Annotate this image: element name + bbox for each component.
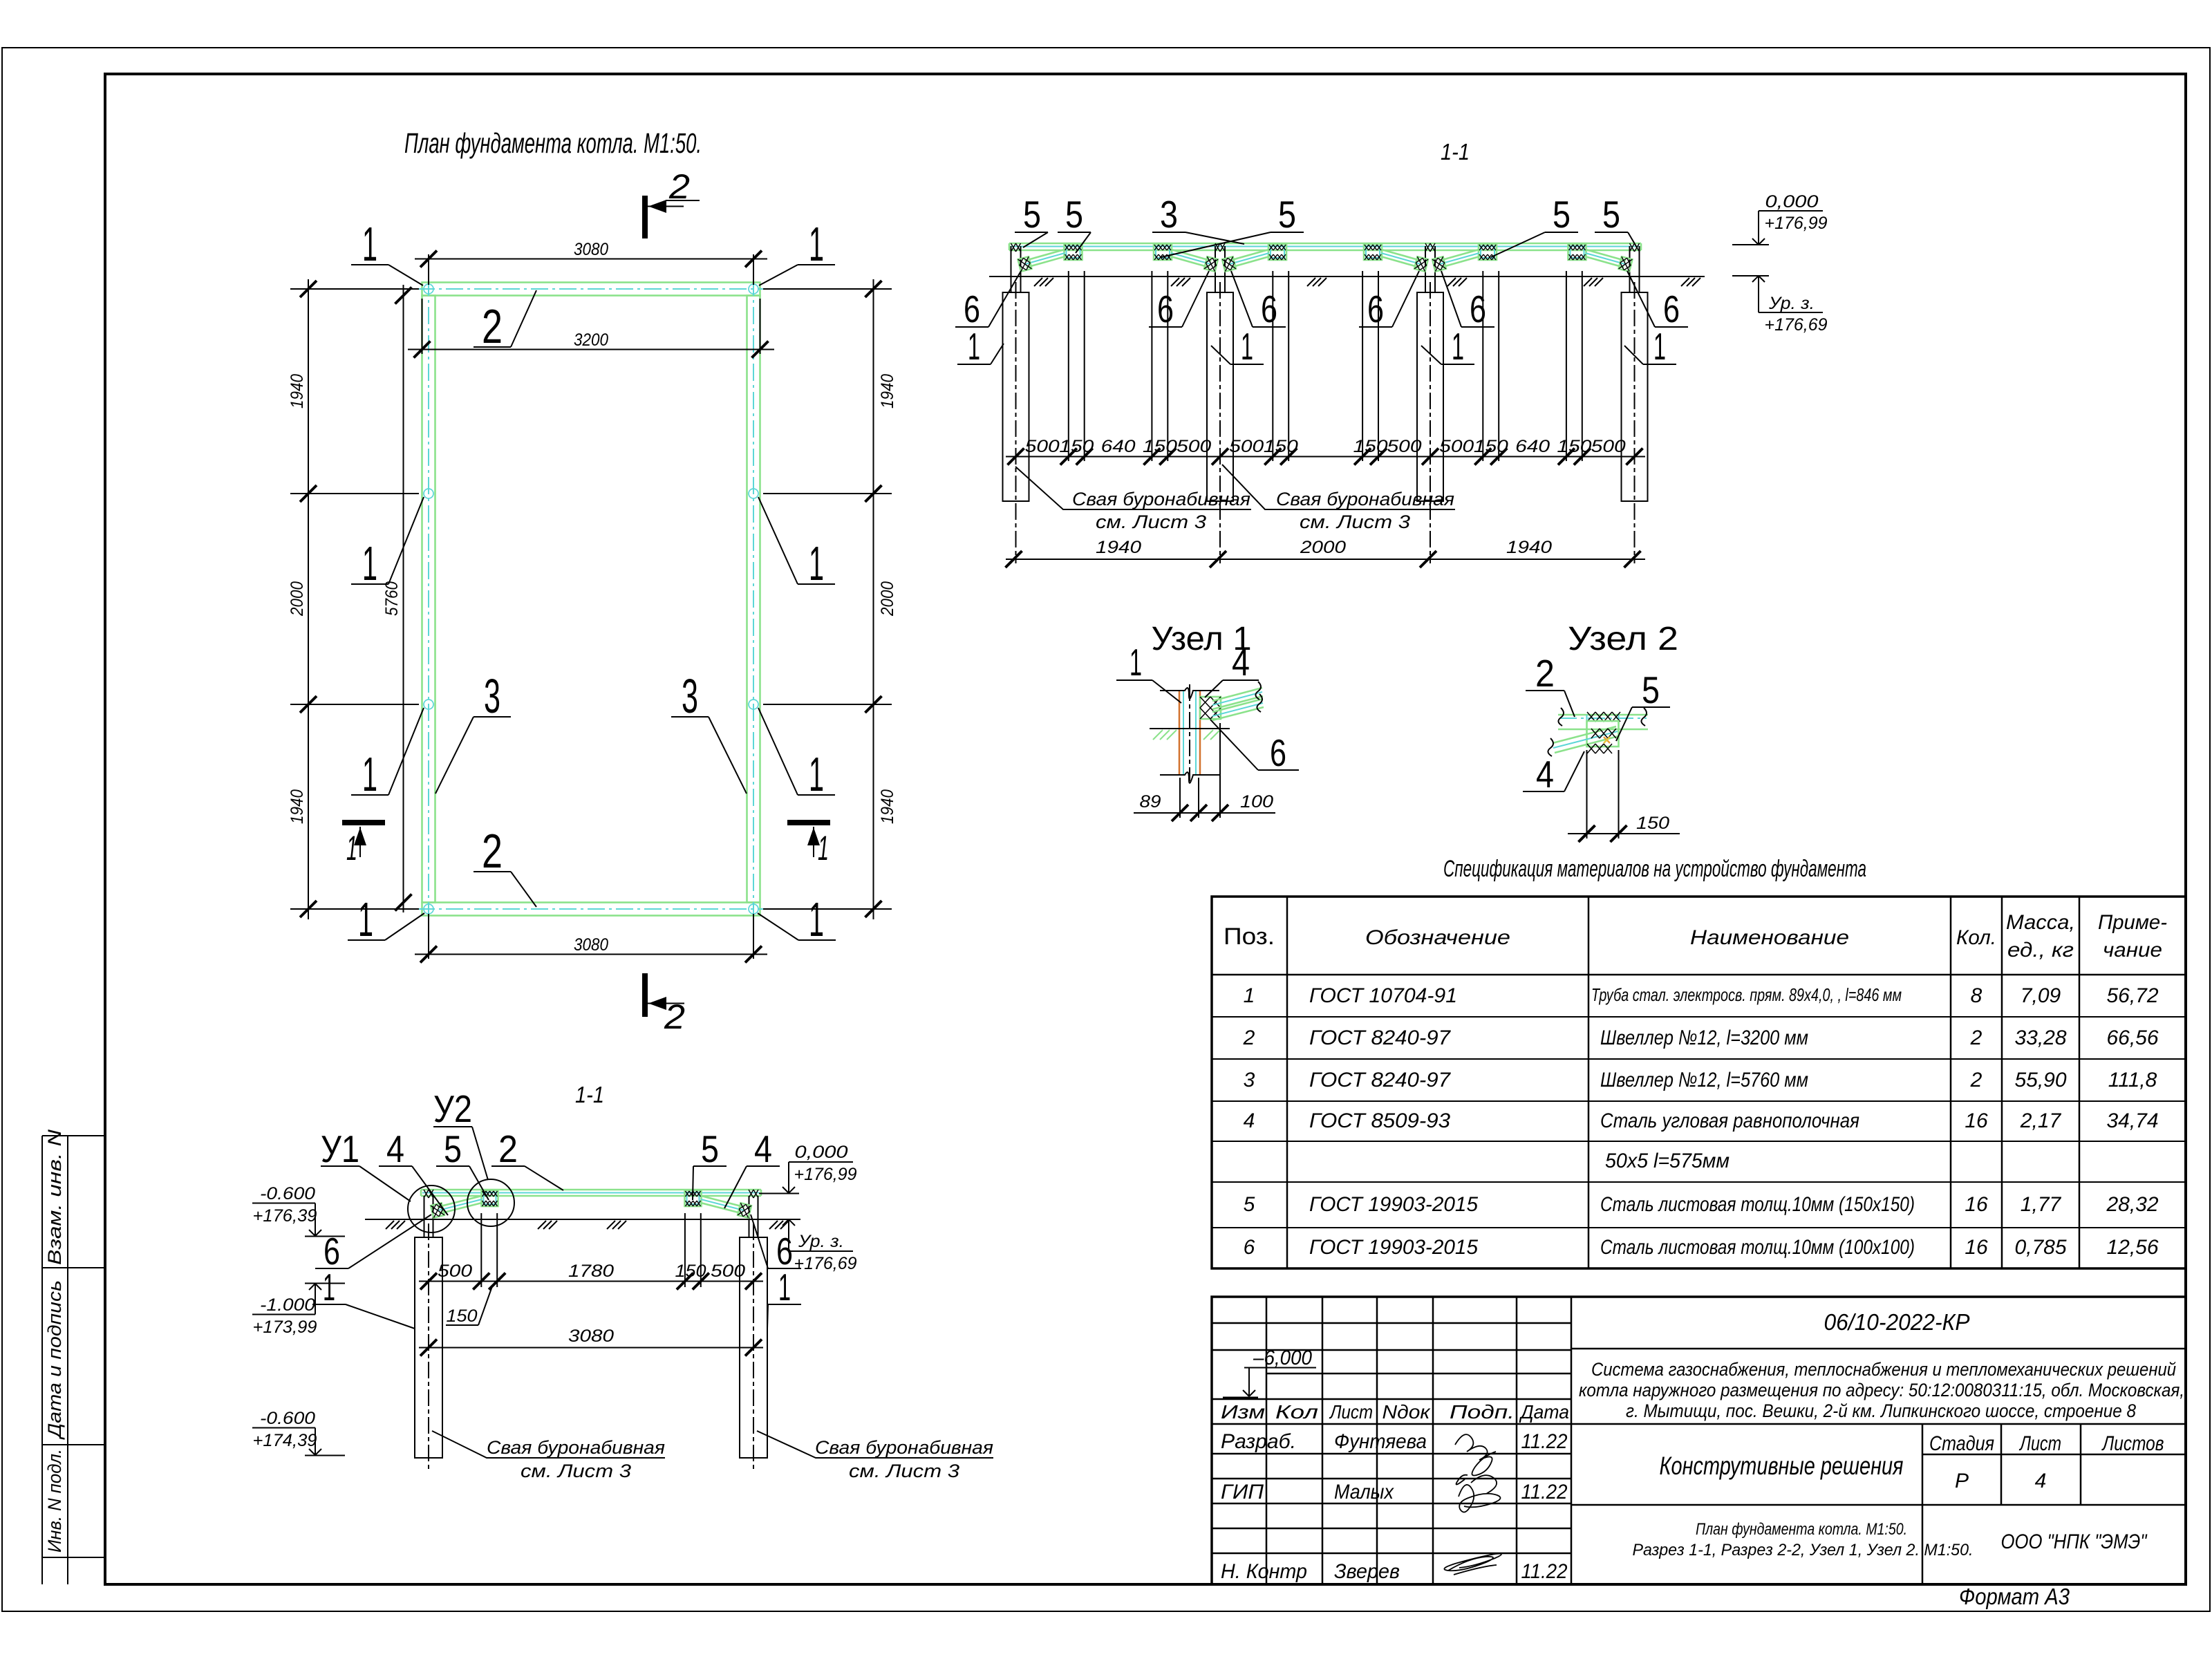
svg-text:2000: 2000 [878, 581, 897, 617]
svg-text:1: 1 [323, 1266, 335, 1309]
svg-text:5: 5 [701, 1127, 719, 1170]
svg-text:Малых: Малых [1334, 1481, 1394, 1503]
svg-text:Сталь листовая толщ.10мм (100х: Сталь листовая толщ.10мм (100х100) [1600, 1236, 1915, 1259]
svg-text:Н. Контр: Н. Контр [1221, 1560, 1307, 1583]
svg-text:500: 500 [1439, 437, 1474, 456]
svg-text:6: 6 [964, 288, 980, 330]
svg-text:Труба стал. электросв. прям. 8: Труба стал. электросв. прям. 89х4,0, , l… [1591, 984, 1902, 1005]
svg-text:640: 640 [1101, 437, 1136, 456]
svg-text:111,8: 111,8 [2108, 1069, 2157, 1091]
svg-text:Стадия: Стадия [1929, 1432, 1994, 1455]
svg-text:500: 500 [1591, 437, 1626, 456]
svg-text:Разрез 1-1, Разрез 2-2, Узел 1: Разрез 1-1, Разрез 2-2, Узел 1, Узел 2. … [1633, 1541, 1974, 1559]
svg-text:Nдок: Nдок [1382, 1401, 1432, 1423]
svg-text:Взам. инв. N: Взам. инв. N [44, 1129, 65, 1265]
svg-text:89: 89 [1140, 792, 1161, 812]
svg-text:ГОСТ 19903-2015: ГОСТ 19903-2015 [1309, 1236, 1478, 1259]
svg-text:-0.600: -0.600 [260, 1409, 315, 1428]
svg-text:1-1: 1-1 [575, 1082, 604, 1107]
svg-text:1: 1 [1452, 325, 1464, 368]
svg-text:Швеллер №12, l=3200 мм: Швеллер №12, l=3200 мм [1600, 1027, 1808, 1049]
svg-text:Изм: Изм [1221, 1401, 1265, 1423]
svg-text:План фундамента котла. М1:50.: План фундамента котла. М1:50. [1696, 1520, 1907, 1539]
svg-text:16: 16 [1965, 1109, 1988, 1132]
svg-text:6: 6 [1663, 288, 1680, 330]
svg-text:1940: 1940 [288, 789, 307, 824]
svg-text:Лист: Лист [1329, 1401, 1373, 1423]
svg-text:Масса,: Масса, [2006, 911, 2075, 934]
svg-text:150: 150 [675, 1262, 706, 1281]
svg-text:1: 1 [1244, 984, 1255, 1007]
svg-text:2: 2 [1535, 652, 1555, 695]
svg-text:ГОСТ 8240-97: ГОСТ 8240-97 [1309, 1069, 1451, 1091]
svg-text:3080: 3080 [568, 1327, 614, 1346]
svg-text:Система газоснабжения, теплосн: Система газоснабжения, теплоснабжения и … [1591, 1359, 2176, 1380]
svg-text:1: 1 [362, 536, 377, 590]
svg-text:3080: 3080 [574, 935, 608, 955]
svg-text:1: 1 [1653, 325, 1666, 368]
svg-text:56,72: 56,72 [2106, 984, 2158, 1007]
svg-text:Узел 2: Узел 2 [1568, 621, 1678, 657]
svg-text:Кол.: Кол. [1956, 926, 1996, 949]
svg-text:150: 150 [1353, 437, 1388, 456]
svg-text:котла наружного размещения по: котла наружного размещения по адресу: 50… [1579, 1380, 2184, 1400]
svg-text:6: 6 [1157, 288, 1174, 330]
svg-text:5: 5 [1023, 193, 1041, 236]
svg-text:5: 5 [1244, 1193, 1255, 1216]
svg-text:4: 4 [1536, 753, 1554, 796]
svg-text:1: 1 [1241, 325, 1253, 368]
svg-text:1: 1 [818, 829, 829, 868]
svg-text:–6,000: –6,000 [1253, 1347, 1312, 1369]
svg-text:6: 6 [1244, 1236, 1255, 1259]
svg-text:2: 2 [1243, 1027, 1255, 1049]
svg-text:0,000: 0,000 [795, 1143, 848, 1162]
svg-text:500: 500 [711, 1262, 745, 1281]
svg-text:4: 4 [2035, 1470, 2047, 1492]
svg-text:Кол: Кол [1275, 1401, 1318, 1423]
svg-text:7,09: 7,09 [2021, 984, 2061, 1007]
svg-text:3080: 3080 [574, 240, 608, 259]
svg-text:55,90: 55,90 [2014, 1069, 2066, 1091]
svg-text:Подп.: Подп. [1450, 1401, 1515, 1423]
svg-text:+176,99: +176,99 [794, 1165, 857, 1184]
svg-text:1940: 1940 [878, 374, 897, 409]
svg-text:4: 4 [1244, 1109, 1255, 1132]
svg-text:1780: 1780 [568, 1262, 614, 1281]
svg-text:Формат А3: Формат А3 [1959, 1584, 2070, 1609]
svg-text:06/10-2022-КР: 06/10-2022-КР [1824, 1309, 1970, 1335]
svg-text:Инв. N подл.: Инв. N подл. [44, 1449, 65, 1553]
svg-text:ГОСТ 8509-93: ГОСТ 8509-93 [1309, 1109, 1450, 1132]
svg-text:11.22: 11.22 [1521, 1481, 1568, 1503]
svg-text:5: 5 [1278, 193, 1296, 236]
svg-text:640: 640 [1515, 437, 1550, 456]
svg-text:1: 1 [362, 217, 377, 271]
svg-text:У2: У2 [433, 1087, 472, 1130]
svg-text:3: 3 [1160, 193, 1178, 236]
svg-text:150: 150 [1143, 437, 1177, 456]
svg-text:2: 2 [1970, 1027, 1983, 1049]
svg-text:4: 4 [386, 1127, 404, 1170]
svg-text:500: 500 [1177, 437, 1211, 456]
svg-text:Лист: Лист [2018, 1432, 2061, 1455]
svg-text:+173,99: +173,99 [253, 1318, 317, 1337]
svg-text:ГОСТ 19903-2015: ГОСТ 19903-2015 [1309, 1193, 1478, 1216]
svg-text:Приме-: Приме- [2098, 911, 2167, 934]
svg-text:150: 150 [1059, 437, 1094, 456]
svg-text:Свая буронабивная: Свая буронабивная [487, 1437, 665, 1458]
svg-text:Свая буронабивная: Свая буронабивная [1276, 489, 1454, 509]
svg-text:1: 1 [358, 892, 373, 946]
svg-text:3200: 3200 [574, 330, 608, 350]
svg-text:чание: чание [2103, 939, 2162, 962]
svg-text:150: 150 [1264, 437, 1298, 456]
svg-text:-1.000: -1.000 [260, 1295, 315, 1315]
svg-text:16: 16 [1965, 1236, 1988, 1259]
svg-text:Ур. з.: Ур. з. [798, 1232, 844, 1251]
svg-text:150: 150 [1474, 437, 1508, 456]
svg-text:6: 6 [1270, 731, 1286, 774]
svg-text:2,17: 2,17 [2020, 1109, 2062, 1132]
svg-text:Спецификация материалов на уст: Спецификация материалов на устройство фу… [1443, 856, 1866, 882]
svg-text:ГОСТ 8240-97: ГОСТ 8240-97 [1309, 1027, 1451, 1049]
svg-text:6: 6 [1470, 288, 1486, 330]
svg-text:2: 2 [482, 824, 503, 878]
svg-text:Сталь листовая толщ.10мм (150х: Сталь листовая толщ.10мм (150х150) [1600, 1193, 1915, 1216]
svg-text:ГОСТ 10704-91: ГОСТ 10704-91 [1309, 984, 1457, 1007]
svg-text:Конструтивные решения: Конструтивные решения [1660, 1452, 1904, 1480]
svg-text:11.22: 11.22 [1521, 1430, 1568, 1453]
svg-text:+176,69: +176,69 [1765, 315, 1828, 335]
svg-text:2: 2 [482, 299, 503, 353]
svg-text:5: 5 [1065, 193, 1083, 236]
svg-text:Обозначение: Обозначение [1365, 926, 1510, 949]
svg-text:6: 6 [1367, 288, 1384, 330]
svg-text:4: 4 [1232, 641, 1250, 684]
svg-text:1: 1 [968, 325, 980, 368]
svg-text:50х5 l=575мм: 50х5 l=575мм [1605, 1150, 1730, 1172]
svg-text:1940: 1940 [878, 789, 897, 824]
svg-text:-0.600: -0.600 [260, 1184, 315, 1203]
svg-text:1: 1 [346, 829, 357, 868]
svg-text:3: 3 [484, 669, 500, 723]
svg-text:0,000: 0,000 [1765, 192, 1819, 212]
svg-text:2: 2 [664, 997, 685, 1036]
svg-text:500: 500 [1229, 437, 1264, 456]
svg-text:150: 150 [447, 1306, 478, 1326]
svg-text:+176,69: +176,69 [794, 1254, 857, 1273]
svg-text:1,77: 1,77 [2021, 1193, 2062, 1216]
svg-text:500: 500 [1025, 437, 1060, 456]
svg-text:ГИП: ГИП [1221, 1481, 1264, 1503]
svg-text:1: 1 [778, 1266, 791, 1309]
svg-text:Ур. з.: Ур. з. [1768, 294, 1815, 313]
svg-text:5: 5 [1642, 668, 1660, 711]
svg-text:1940: 1940 [288, 374, 307, 409]
svg-text:Дата и подпись: Дата и подпись [44, 1280, 65, 1440]
svg-text:0,785: 0,785 [2014, 1236, 2066, 1259]
svg-text:28,32: 28,32 [2106, 1193, 2158, 1216]
svg-text:План фундамента котла. М1:50.: План фундамента котла. М1:50. [404, 127, 702, 159]
svg-text:1: 1 [362, 747, 377, 801]
svg-text:У1: У1 [321, 1127, 359, 1170]
svg-text:Сталь угловая равнополочная: Сталь угловая равнополочная [1600, 1109, 1859, 1132]
svg-text:Разраб.: Разраб. [1221, 1430, 1296, 1453]
svg-text:11.22: 11.22 [1521, 1560, 1568, 1583]
svg-text:500: 500 [438, 1262, 472, 1281]
svg-text:1940: 1940 [1506, 538, 1552, 557]
svg-text:16: 16 [1965, 1193, 1988, 1216]
svg-text:Фунтяева: Фунтяева [1334, 1430, 1427, 1453]
svg-text:5: 5 [1553, 193, 1571, 236]
svg-text:1-1: 1-1 [1441, 139, 1470, 165]
svg-text:1: 1 [809, 536, 824, 590]
svg-text:1: 1 [809, 892, 824, 946]
svg-text:12,56: 12,56 [2106, 1236, 2158, 1259]
svg-text:3: 3 [682, 669, 698, 723]
svg-text:2000: 2000 [1300, 538, 1346, 557]
svg-text:2: 2 [1970, 1069, 1983, 1091]
svg-text:Швеллер №12, l=5760 мм: Швеллер №12, l=5760 мм [1600, 1069, 1808, 1091]
svg-text:2000: 2000 [288, 581, 307, 617]
svg-text:3: 3 [1244, 1069, 1255, 1091]
svg-text:8: 8 [1971, 984, 1983, 1007]
svg-text:Р: Р [1955, 1470, 1969, 1492]
svg-text:Дата: Дата [1519, 1401, 1569, 1423]
svg-text:1940: 1940 [1096, 538, 1141, 557]
svg-text:+176,99: +176,99 [1765, 214, 1828, 233]
svg-text:1: 1 [809, 747, 824, 801]
svg-text:2: 2 [498, 1127, 518, 1170]
svg-text:1: 1 [809, 217, 824, 271]
svg-text:6: 6 [1261, 288, 1277, 330]
svg-text:66,56: 66,56 [2106, 1027, 2158, 1049]
svg-text:5760: 5760 [382, 581, 402, 616]
svg-text:см. Лист 3: см. Лист 3 [1096, 512, 1206, 532]
svg-text:г. Мытищи, пос. Вешки, 2-й км.: г. Мытищи, пос. Вешки, 2-й км. Липкинско… [1626, 1400, 2136, 1421]
svg-text:+176,39: +176,39 [253, 1206, 317, 1226]
svg-text:Наименование: Наименование [1690, 926, 1849, 949]
svg-text:34,74: 34,74 [2106, 1109, 2158, 1132]
svg-text:150: 150 [1557, 437, 1591, 456]
svg-text:Свая буронабивная: Свая буронабивная [815, 1437, 993, 1458]
svg-text:1: 1 [1130, 641, 1142, 684]
svg-text:ед., кг: ед., кг [2007, 939, 2074, 962]
svg-text:см. Лист 3: см. Лист 3 [521, 1461, 631, 1481]
svg-text:5: 5 [444, 1127, 462, 1170]
svg-text:4: 4 [754, 1127, 772, 1170]
svg-text:см. Лист 3: см. Лист 3 [849, 1461, 959, 1481]
svg-text:Листов: Листов [2101, 1432, 2164, 1455]
svg-text:150: 150 [1636, 814, 1669, 833]
svg-text:Свая буронабивная: Свая буронабивная [1072, 489, 1250, 509]
svg-text:Зверев: Зверев [1334, 1560, 1400, 1583]
svg-text:Поз.: Поз. [1224, 924, 1275, 950]
svg-text:+174,39: +174,39 [253, 1431, 317, 1450]
svg-text:ООО "НПК "ЭМЭ": ООО "НПК "ЭМЭ" [2001, 1530, 2148, 1553]
svg-text:см. Лист 3: см. Лист 3 [1300, 512, 1410, 532]
svg-text:500: 500 [1387, 437, 1422, 456]
svg-text:100: 100 [1240, 792, 1273, 812]
svg-text:33,28: 33,28 [2014, 1027, 2066, 1049]
svg-text:5: 5 [1602, 193, 1620, 236]
